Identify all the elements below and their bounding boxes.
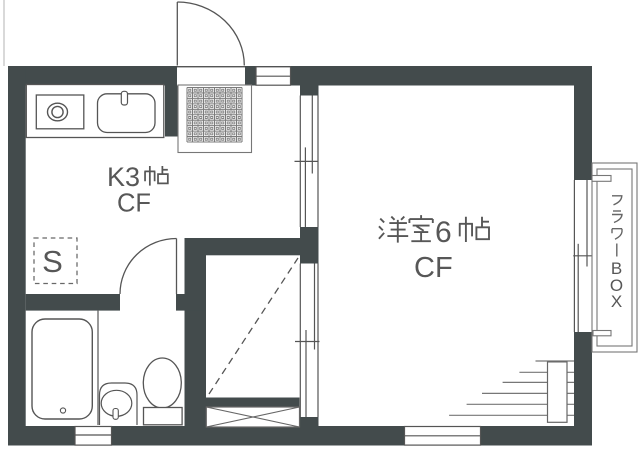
svg-text:S: S xyxy=(42,244,63,279)
svg-text:CF: CF xyxy=(117,190,151,218)
svg-text:CF: CF xyxy=(414,252,453,284)
svg-text:6: 6 xyxy=(435,216,452,249)
svg-text:X: X xyxy=(611,292,622,311)
svg-text:K3: K3 xyxy=(107,162,140,192)
